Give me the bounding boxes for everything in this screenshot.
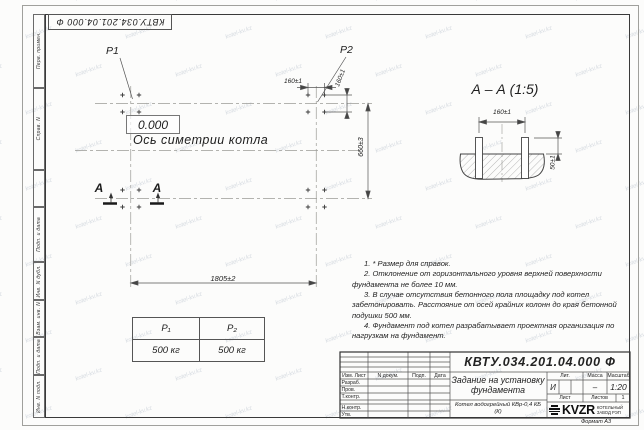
designation-text-rotated: КВТУ.034.201.04.000 Ф [56, 17, 165, 27]
dim-bolt-x-label: 160±1 [260, 78, 302, 85]
load-point-p1-label: P1 [106, 45, 130, 57]
note-2: 2. Отклонение от горизонтального уровня … [352, 269, 632, 290]
section-dim-protrusion-label: 50±1 [549, 148, 558, 178]
tb-col-izm-list: Изм. Лист [340, 372, 368, 379]
designation-main: КВТУ.034.201.04.000 Ф [450, 352, 630, 372]
section-view [460, 117, 562, 182]
sidebar-cell-perv-primen: Перв. примен. [33, 14, 45, 88]
sidebar-cell-inv-dubl: Инв. N дубл. [33, 262, 45, 300]
section-letter-right: А [150, 181, 164, 195]
load-table: P₁ P₂ 500 кг 500 кг [132, 317, 265, 362]
tb-document-title: Задание на установку фундамента [451, 373, 545, 399]
load-table-header-p2: P₂ [199, 318, 264, 339]
dim-width-label: 1805±2 [188, 274, 258, 283]
format-label: Формат А3 [556, 419, 636, 425]
sidebar-label: Инв. N дубл. [36, 265, 42, 298]
sidebar-cell-empty [33, 170, 45, 207]
notes-block: 1. * Размер для справок. 2. Отклонение о… [352, 259, 632, 342]
load-table-header-p1: P₁ [133, 318, 199, 339]
tb-subtitle: Котел водогрейный КВр-0,4 КБ (К) [451, 401, 545, 417]
kvzr-logo: KVZR КОТЕЛЬНЫЙ ЗАВОД РЭП [549, 403, 628, 417]
note-3: 3. В случае отсутствия бетонного пола пл… [352, 290, 632, 321]
sidebar-cell-sprav-n: Справ. N [33, 88, 45, 170]
tb-col-podp: Подп. [408, 372, 430, 379]
tb-sheets-label: Листов [583, 394, 616, 402]
tb-scale-value: 1:20 [607, 380, 630, 394]
load-point-p2-label: P2 [340, 44, 364, 56]
tb-row-utv: Утв. [342, 411, 369, 418]
tb-mass-header: Масса [583, 372, 607, 380]
level-mark-label: 0.000 [126, 115, 180, 134]
tb-row-prov: Пров. [342, 386, 369, 393]
tb-scale-header: Масштаб [607, 372, 630, 380]
kvzr-logo-icon [549, 405, 560, 414]
tb-row-tkontr: Т.контр. [342, 393, 369, 400]
foundation-concrete [460, 154, 544, 179]
note-4: 4. Фундамент под котел разрабатывает про… [352, 321, 632, 342]
dim-height-label: 660±3 [356, 130, 366, 164]
anchor-bolt-right [522, 138, 529, 179]
anchor-bolt-left [476, 138, 483, 179]
note-1: 1. * Размер для справок. [352, 259, 632, 269]
sidebar-label: Подп. и дата [36, 217, 42, 252]
tb-lit-value: И [547, 380, 559, 394]
sidebar-cell-podp-data-1: Подп. и дата [33, 207, 45, 262]
sidebar-cell-inv-podl: Инв. N подл. [33, 375, 45, 418]
load-table-value-p2: 500 кг [199, 339, 264, 361]
sidebar-label: Перв. примен. [36, 32, 42, 69]
plan-dimension-lines [120, 57, 370, 285]
designation-stamp-rotated: КВТУ.034.201.04.000 Ф [48, 14, 172, 30]
sidebar-label: Подп. и дата [36, 339, 42, 374]
sidebar-label: Справ. N [36, 117, 42, 140]
sidebar-label: Взам. инв. N [36, 302, 42, 335]
drawing-sheet: kotel-kv.kzkotel-kv.kzkotel-kv.kzkotel-k… [0, 0, 644, 430]
tb-lit-header: Лит. [547, 372, 583, 380]
kvzr-logo-caption: КОТЕЛЬНЫЙ ЗАВОД РЭП [597, 405, 625, 415]
sidebar-label: Инв. N подл. [36, 380, 42, 413]
tb-row-razrab: Разраб. [342, 379, 369, 386]
sidebar-cell-podp-data-2: Подп. и дата [33, 337, 45, 375]
tb-col-data: Дата [430, 372, 450, 379]
kvzr-logo-text: KVZR [562, 403, 595, 417]
sidebar-cell-vzam-inv: Взам. инв. N [33, 300, 45, 337]
tb-col-n-dokum: N докум. [368, 372, 408, 379]
tb-sheets-value: 1 [616, 394, 630, 402]
tb-mass-value: – [583, 380, 607, 394]
section-dim-spacing-label: 160±1 [479, 109, 525, 116]
plan-axis-lines [75, 86, 372, 288]
symmetry-axis-label: Ось симетрии котла [133, 133, 303, 147]
load-table-value-p1: 500 кг [133, 339, 199, 361]
section-title: А – А (1:5) [450, 81, 560, 97]
tb-row-nkontr: Н.контр. [342, 404, 369, 411]
tb-sheet-label: Лист [547, 394, 583, 402]
section-letter-left: А [92, 181, 106, 195]
